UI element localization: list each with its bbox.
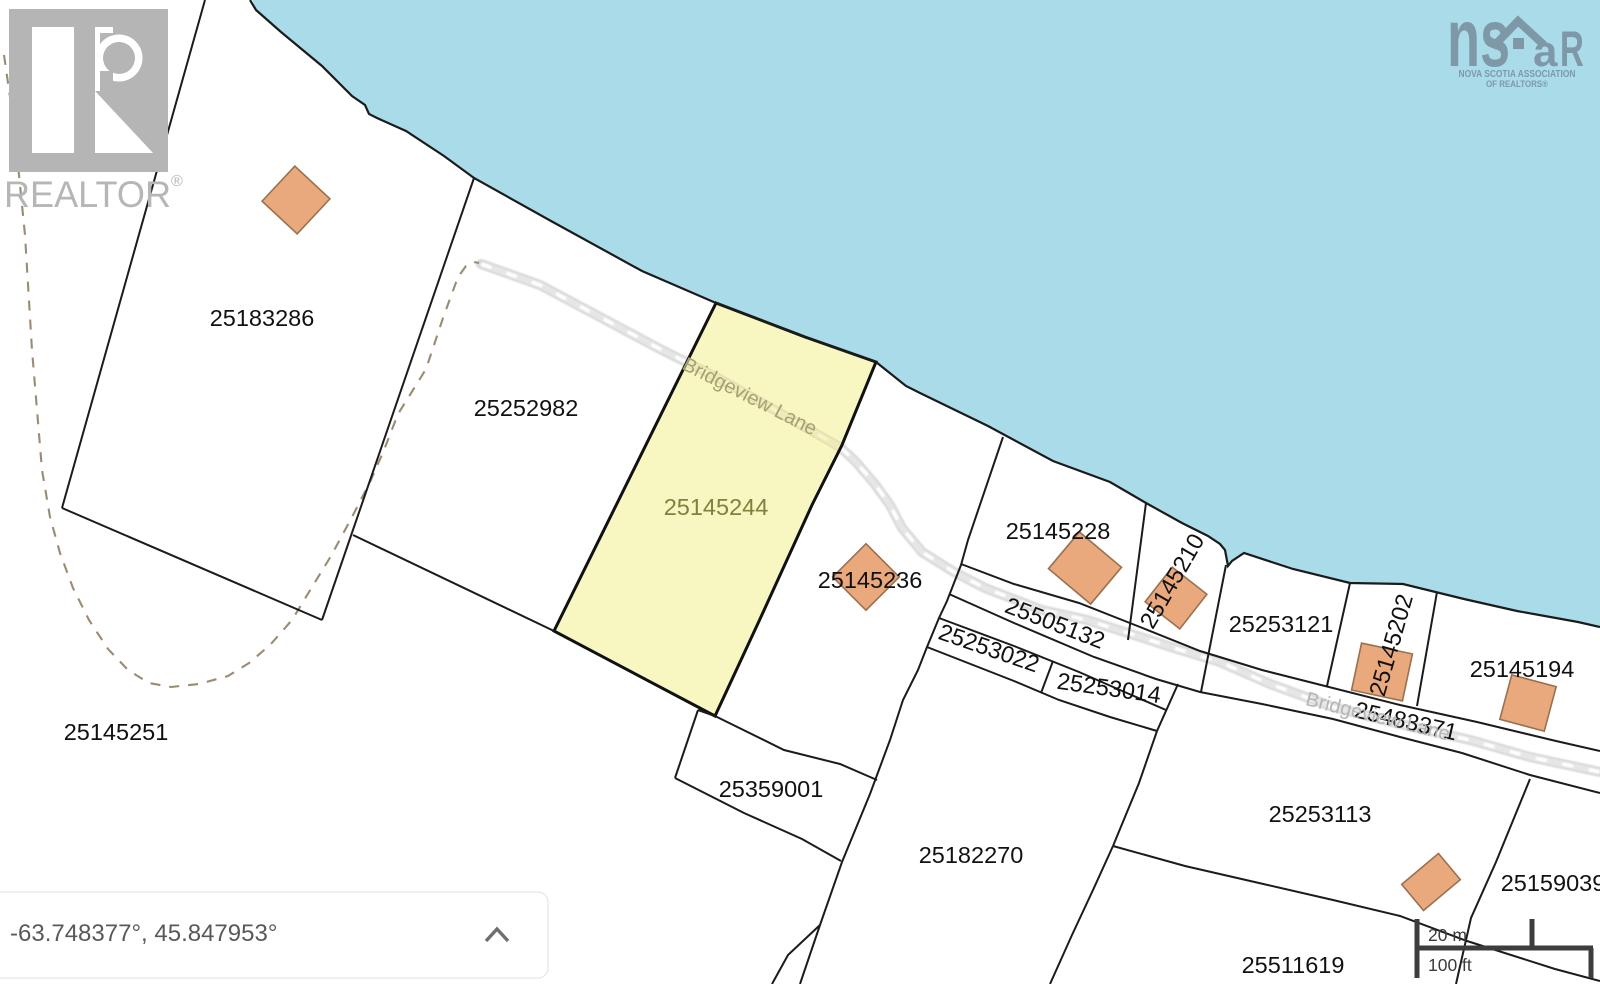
svg-text:25183286: 25183286 — [210, 305, 315, 331]
svg-text:25253113: 25253113 — [1269, 801, 1372, 827]
svg-text:®: ® — [171, 173, 183, 190]
svg-text:25145236: 25145236 — [818, 567, 923, 593]
svg-text:25145244: 25145244 — [664, 494, 769, 520]
svg-text:25145251: 25145251 — [64, 719, 169, 745]
svg-text:25145194: 25145194 — [1470, 656, 1575, 682]
svg-text:25359001: 25359001 — [719, 776, 824, 802]
svg-text:25159039: 25159039 — [1501, 870, 1600, 896]
svg-text:25252982: 25252982 — [474, 395, 579, 421]
svg-text:REALTOR: REALTOR — [4, 174, 171, 215]
svg-text:100 ft: 100 ft — [1428, 955, 1472, 975]
svg-text:25145228: 25145228 — [1006, 518, 1111, 544]
svg-text:25511619: 25511619 — [1242, 952, 1345, 978]
svg-text:20 m: 20 m — [1428, 925, 1467, 945]
svg-text:25182270: 25182270 — [919, 842, 1024, 868]
svg-text:25253121: 25253121 — [1229, 611, 1334, 637]
svg-text:OF REALTORS®: OF REALTORS® — [1486, 79, 1548, 89]
svg-text:-63.748377°, 45.847953°: -63.748377°, 45.847953° — [10, 920, 277, 947]
